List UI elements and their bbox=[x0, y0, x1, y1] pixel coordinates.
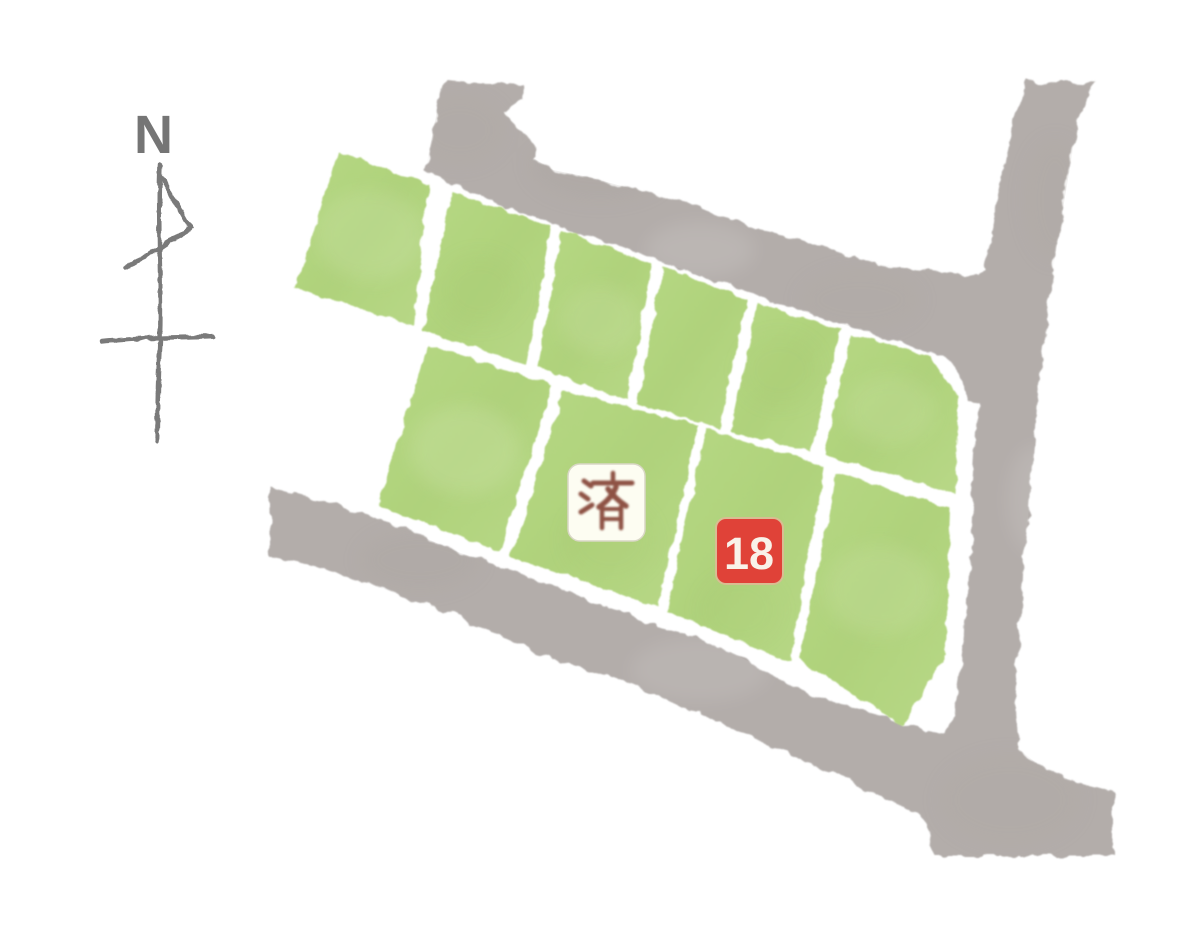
svg-text:N: N bbox=[134, 105, 173, 165]
svg-text:18: 18 bbox=[724, 528, 774, 579]
